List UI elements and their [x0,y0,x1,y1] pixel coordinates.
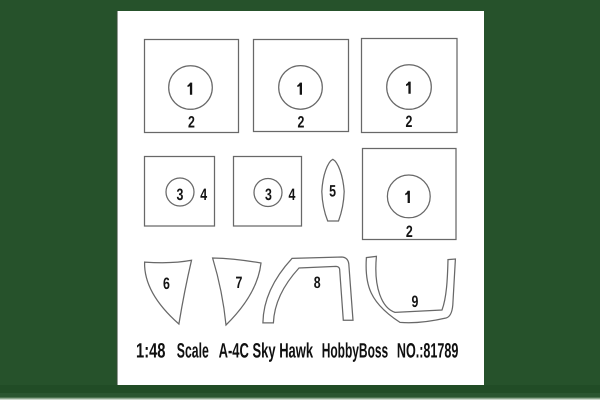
svg-text:7: 7 [236,274,243,292]
svg-text:2: 2 [406,113,413,131]
svg-text:1:48: 1:48 [136,340,166,363]
svg-text:2: 2 [188,114,195,132]
svg-text:5: 5 [329,182,336,200]
svg-text:9: 9 [411,293,418,311]
svg-text:4: 4 [288,186,296,204]
svg-text:2: 2 [298,114,305,132]
svg-text:4: 4 [200,186,208,204]
svg-text:6: 6 [163,275,170,293]
svg-text:HobbyBoss: HobbyBoss [322,340,389,363]
svg-text:2: 2 [406,223,413,241]
svg-text:3: 3 [176,186,183,204]
svg-text:NO.:81789: NO.:81789 [397,340,459,363]
svg-text:A-4C Sky Hawk: A-4C Sky Hawk [219,340,314,363]
svg-text:Scale: Scale [177,340,209,363]
svg-text:8: 8 [314,274,321,292]
svg-text:3: 3 [265,186,272,204]
